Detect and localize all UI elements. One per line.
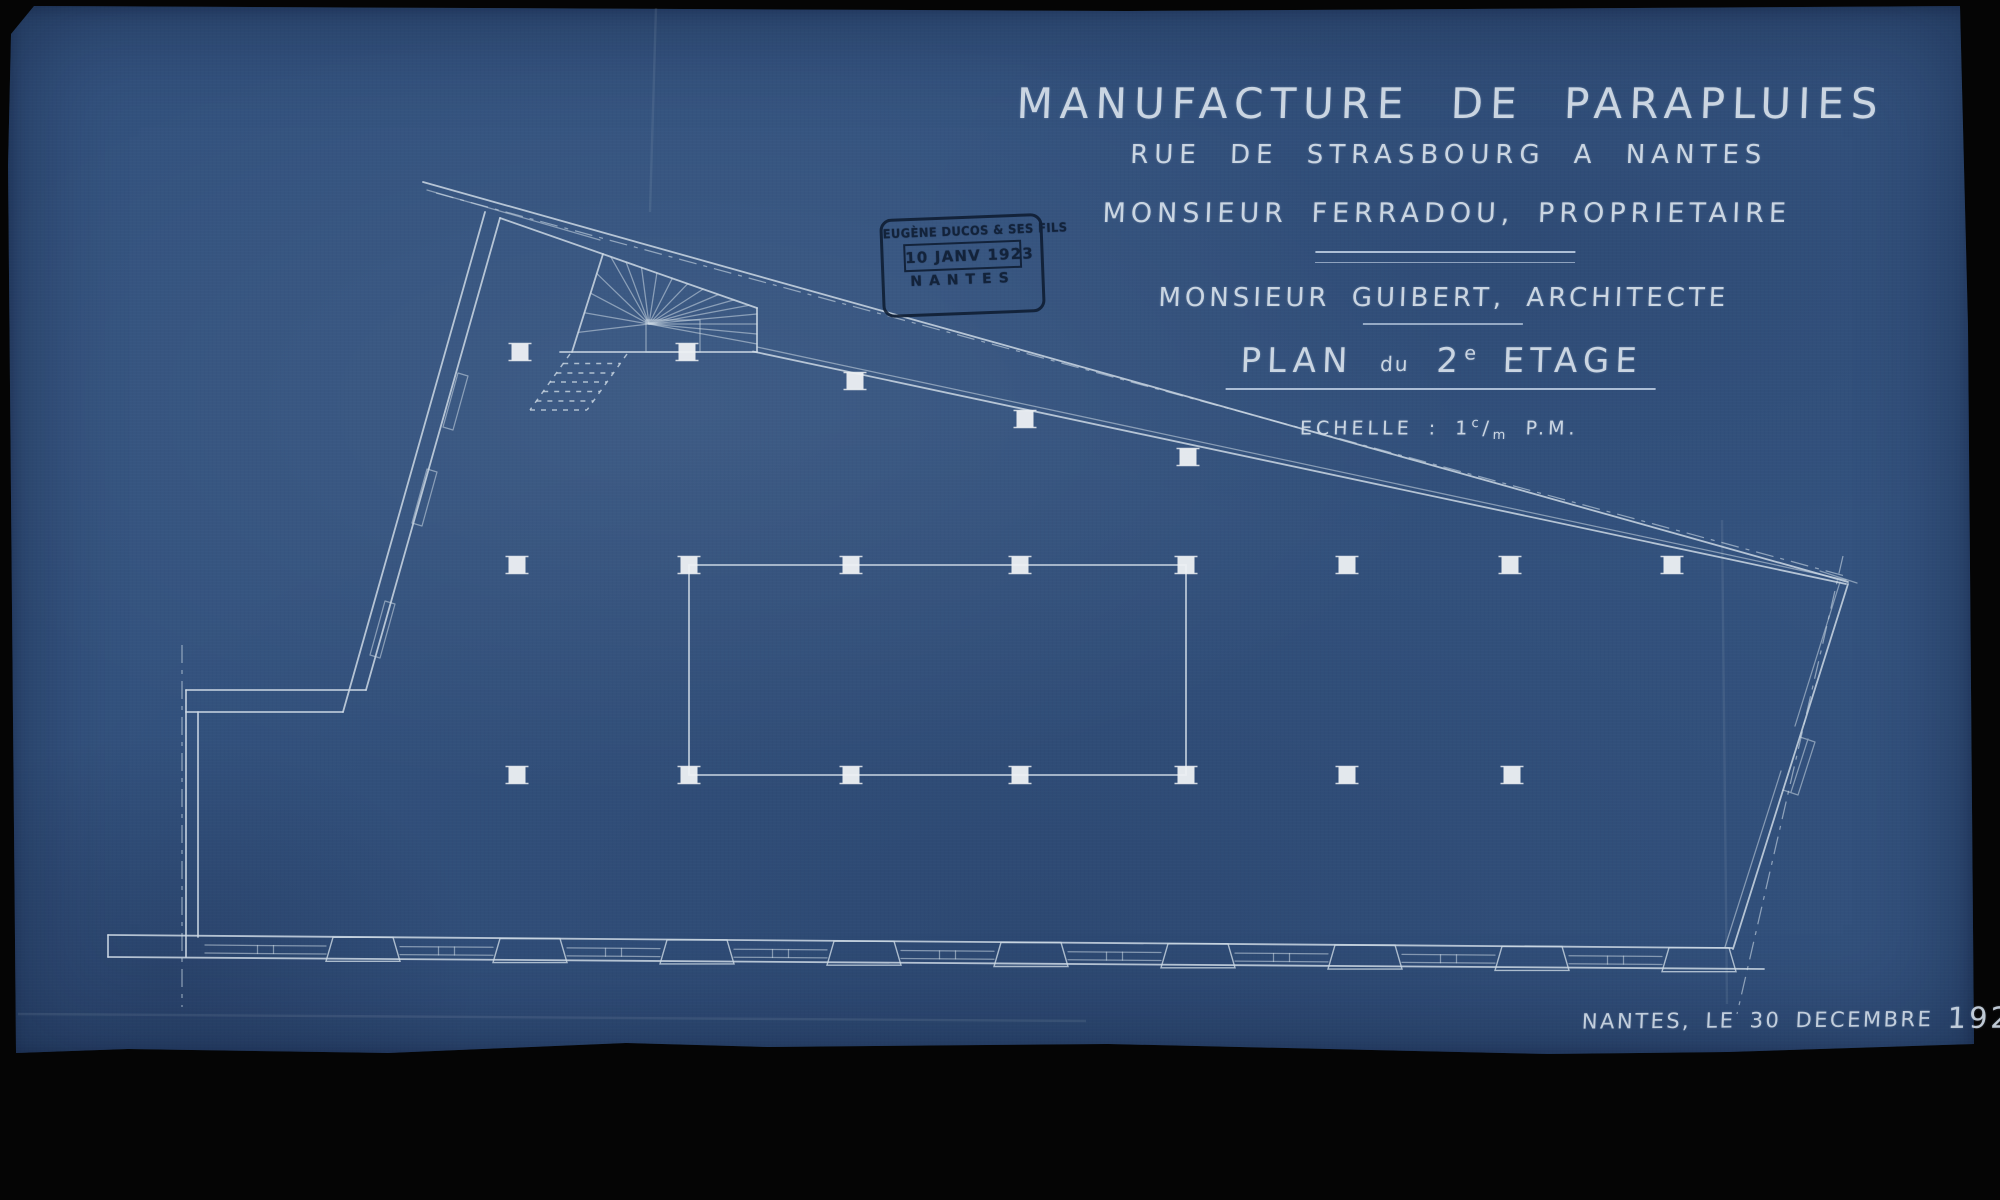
column-marker: [1336, 767, 1359, 784]
right-wall-outer: [1733, 584, 1848, 949]
column-marker: [1336, 557, 1359, 574]
column-marker: [1499, 557, 1522, 574]
column-marker: [840, 767, 863, 784]
column-marker: [1501, 767, 1524, 784]
column-marker: [506, 767, 529, 784]
facade-window-sill: [734, 949, 827, 950]
architect-underline: [1363, 323, 1523, 325]
stamp-city: NANTES: [884, 269, 1041, 291]
column-marker: [676, 344, 699, 361]
facade-window-sill: [901, 950, 994, 951]
signature-date-line: NANTES, LE 30 DECEMBRE 1922: [1581, 1000, 2000, 1037]
scanned-blueprint-sheet: MANUFACTURE DE PARAPLUIES RUE DE STRASBO…: [0, 0, 2000, 1200]
right-wall-inner: [1725, 582, 1840, 947]
stamp-company-name: EUGÈNE DUCOS & SES FILS: [882, 220, 1039, 241]
interior-room-outline: [689, 565, 1186, 775]
facade-window-sill: [1068, 952, 1161, 953]
stair-left-edge: [572, 254, 603, 352]
winder-staircase: [560, 254, 757, 352]
stamp-date: 10 JANV 1923: [905, 242, 1020, 271]
left-wall-outer: [343, 212, 485, 712]
title-divider-rule: [1315, 251, 1575, 263]
stair-lower-flight-dashed: [530, 354, 627, 410]
title-line-project: MANUFACTURE DE PARAPLUIES: [885, 84, 2000, 124]
facade-window-sill: [400, 947, 493, 948]
facade-window-sill: [1569, 956, 1662, 957]
column-marker: [1009, 557, 1032, 574]
column-marker: [1661, 557, 1684, 574]
facade-window-sill: [205, 945, 326, 946]
column-marker: [509, 344, 532, 361]
facade-pier: [326, 937, 400, 961]
title-line-architect: MONSIEUR GUIBERT, ARCHITECTE: [878, 283, 2000, 313]
column-marker: [1175, 767, 1198, 784]
date-received-stamp: EUGÈNE DUCOS & SES FILS 10 JANV 1923 NAN…: [879, 213, 1046, 318]
facade-window-sill: [1402, 954, 1495, 955]
stamp-date-box: 10 JANV 1923: [903, 240, 1022, 273]
plan-title: PLAN du 2e ETAGE: [1225, 341, 1657, 390]
signature-year: 1922: [1947, 1000, 2000, 1035]
left-wall-inner: [366, 218, 500, 690]
left-wall-window-bay: [443, 373, 468, 430]
scale-note: ECHELLE : 1c/m P.M.: [874, 416, 2000, 443]
column-marker: [678, 767, 701, 784]
column-marker: [1009, 767, 1032, 784]
facade-window-sill: [1235, 953, 1328, 954]
column-marker: [1175, 557, 1198, 574]
title-line-address: RUE DE STRASBOURG A NANTES: [883, 140, 2000, 170]
column-marker: [844, 373, 867, 390]
facade-window-sill: [567, 948, 660, 949]
column-marker: [840, 557, 863, 574]
column-marker: [506, 557, 529, 574]
column-marker: [678, 557, 701, 574]
column-marker: [1177, 449, 1200, 466]
